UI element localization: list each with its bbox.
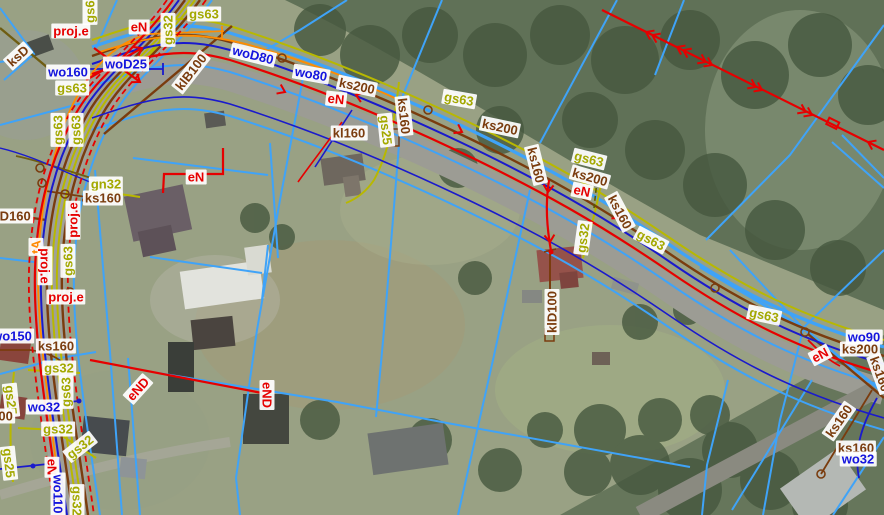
map-viewport[interactable]: gs63proj.eeNgs32gs63ksDwoD80wo160woD25kl… — [0, 0, 884, 515]
map-canvas — [0, 0, 884, 515]
